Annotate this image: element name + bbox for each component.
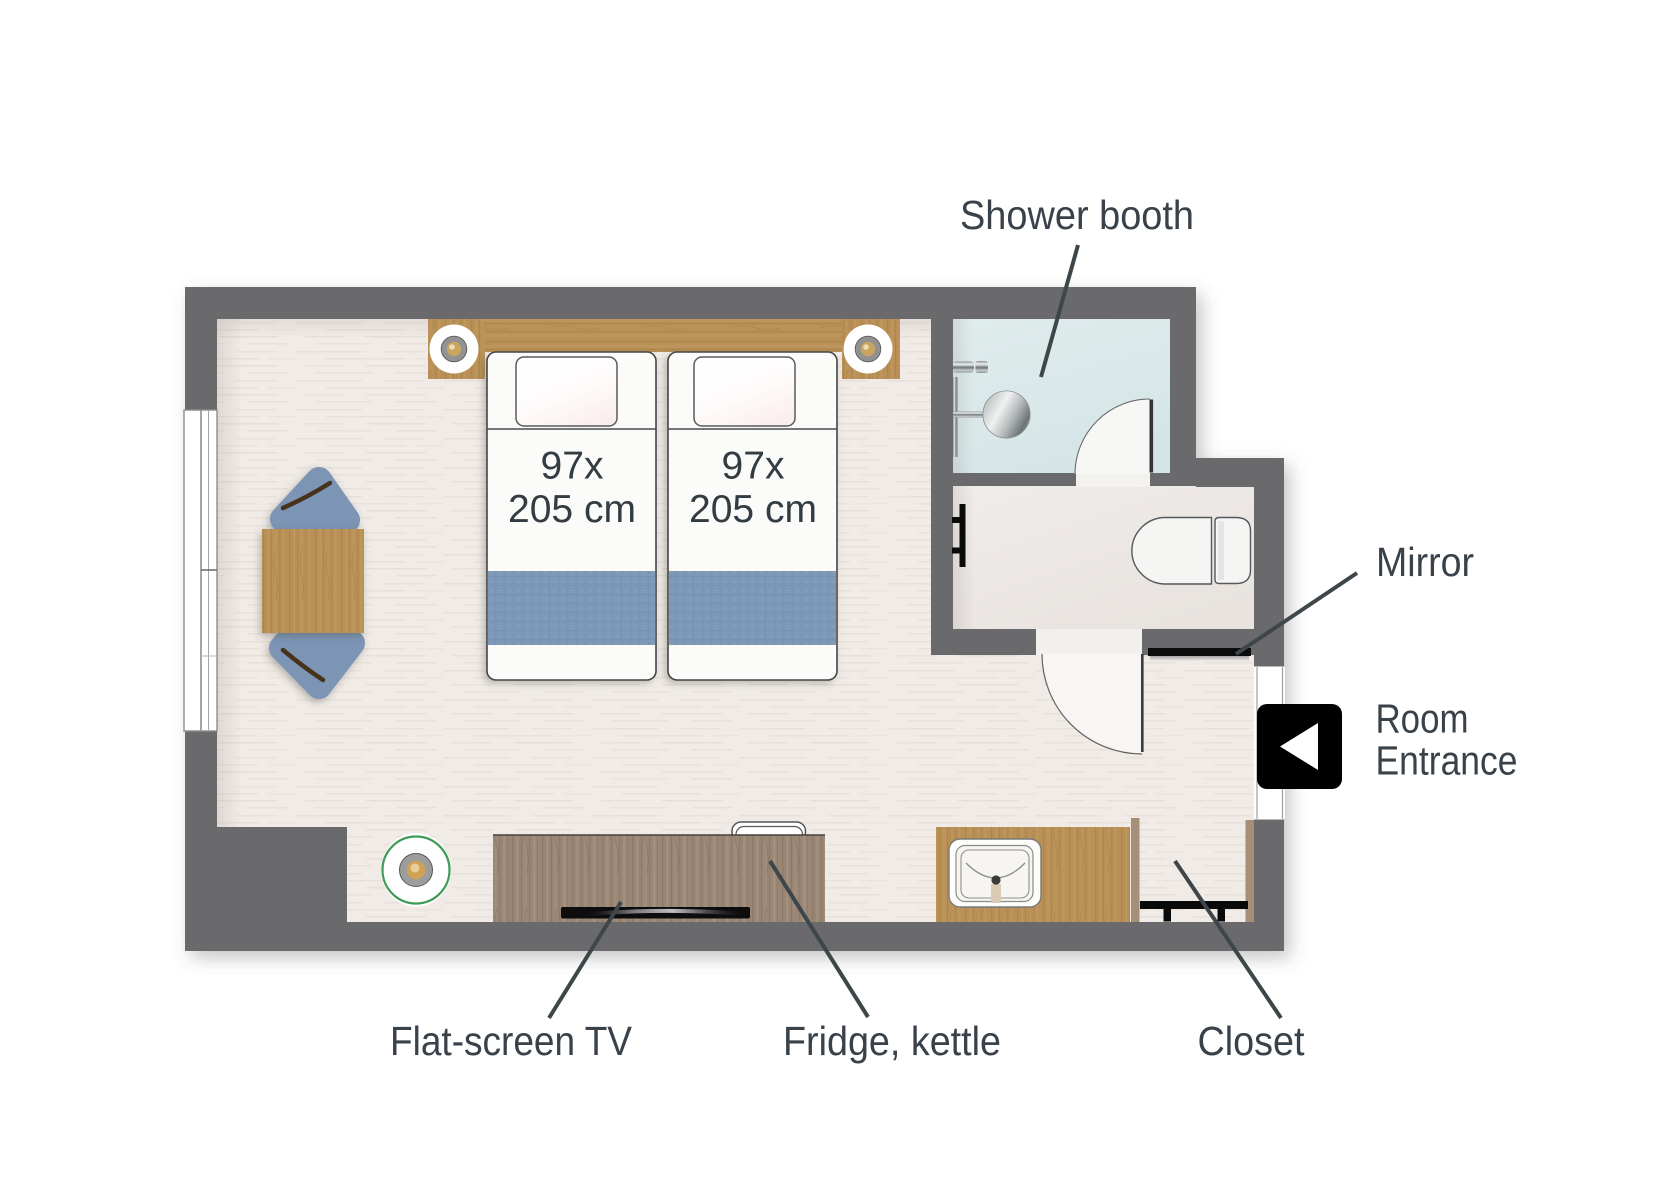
svg-text:205 cm: 205 cm — [508, 488, 636, 531]
svg-text:Entrance: Entrance — [1376, 738, 1518, 784]
svg-text:205 cm: 205 cm — [689, 488, 817, 531]
svg-text:Room: Room — [1376, 696, 1469, 742]
svg-text:97x: 97x — [541, 445, 604, 488]
svg-text:97x: 97x — [722, 445, 785, 488]
svg-text:Fridge, kettle: Fridge, kettle — [783, 1018, 1001, 1064]
svg-text:Shower booth: Shower booth — [960, 192, 1194, 238]
svg-text:Mirror: Mirror — [1376, 539, 1474, 585]
svg-text:Closet: Closet — [1198, 1018, 1306, 1064]
svg-text:Flat-screen TV: Flat-screen TV — [390, 1018, 633, 1064]
